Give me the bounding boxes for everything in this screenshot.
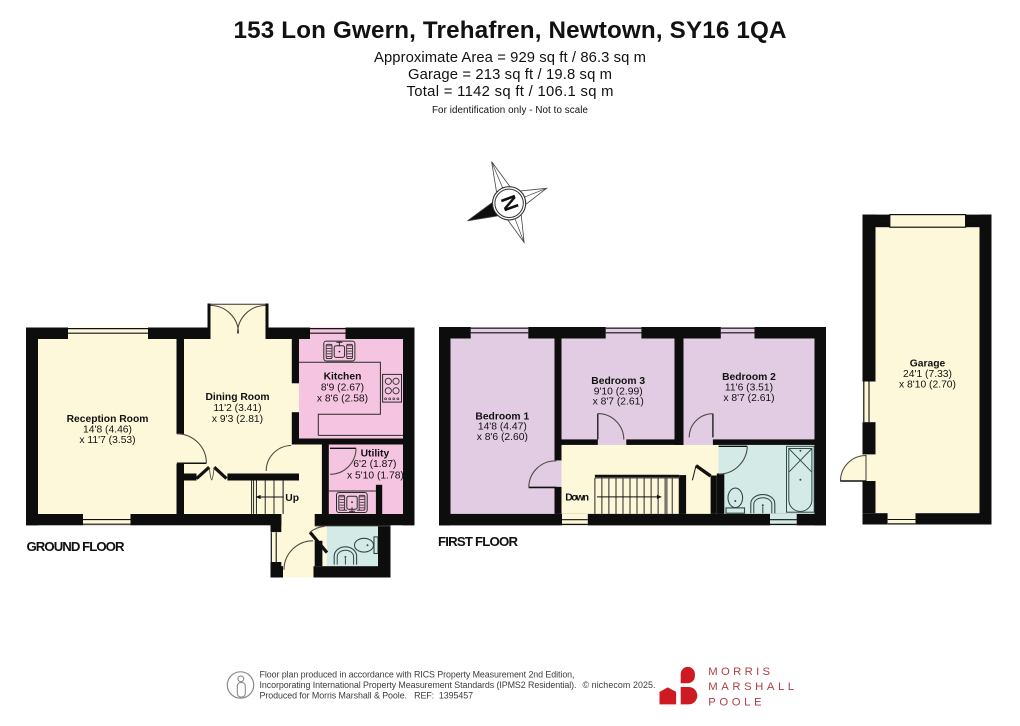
svg-text:x 8'10 (2.70): x 8'10 (2.70) xyxy=(899,379,956,390)
svg-text:GROUND FLOOR: GROUND FLOOR xyxy=(27,539,125,554)
svg-text:24'1 (7.33): 24'1 (7.33) xyxy=(903,369,952,380)
svg-text:Bedroom 1: Bedroom 1 xyxy=(475,411,529,422)
svg-text:x 8'7 (2.61): x 8'7 (2.61) xyxy=(723,393,774,404)
svg-text:Approximate Area = 929 sq ft /: Approximate Area = 929 sq ft / 86.3 sq m xyxy=(374,50,646,66)
svg-text:8'9 (2.67): 8'9 (2.67) xyxy=(321,383,364,394)
svg-text:Total = 1142 sq ft / 106.1 sq: Total = 1142 sq ft / 106.1 sq m xyxy=(407,84,614,100)
svg-text:x 8'7 (2.61): x 8'7 (2.61) xyxy=(593,397,644,408)
svg-text:11'6 (3.51): 11'6 (3.51) xyxy=(725,383,773,394)
svg-text:Floor plan produced in accorda: Floor plan produced in accordance with R… xyxy=(260,670,575,680)
svg-text:© nichecom 2025.: © nichecom 2025. xyxy=(583,680,656,690)
svg-text:x 9'3 (2.81): x 9'3 (2.81) xyxy=(212,414,263,425)
svg-text:14'8 (4.47): 14'8 (4.47) xyxy=(478,422,527,433)
svg-text:Dining Room: Dining Room xyxy=(205,392,269,403)
svg-text:x 8'6 (2.60): x 8'6 (2.60) xyxy=(477,432,528,443)
svg-text:11'2 (3.41): 11'2 (3.41) xyxy=(213,403,261,414)
svg-text:Bedroom 2: Bedroom 2 xyxy=(722,372,776,383)
svg-text:x 8'6 (2.58): x 8'6 (2.58) xyxy=(317,394,368,405)
svg-text:9'10 (2.99): 9'10 (2.99) xyxy=(594,386,643,397)
svg-text:Down: Down xyxy=(565,492,589,503)
svg-text:For identification only - Not: For identification only - Not to scale xyxy=(432,105,589,116)
svg-text:Utility: Utility xyxy=(361,449,390,460)
svg-text:x 11'7 (3.53): x 11'7 (3.53) xyxy=(79,435,135,446)
svg-text:Up: Up xyxy=(285,493,299,504)
svg-text:6'2 (1.87): 6'2 (1.87) xyxy=(353,459,396,470)
svg-text:x 5'10 (1.78): x 5'10 (1.78) xyxy=(347,470,404,481)
svg-text:153 Lon Gwern, Trehafren, Newt: 153 Lon Gwern, Trehafren, Newtown, SY16 … xyxy=(234,17,787,44)
svg-text:Kitchen: Kitchen xyxy=(324,372,362,383)
svg-text:Reception Room: Reception Room xyxy=(67,414,149,425)
svg-text:Incorporating International Pr: Incorporating International Property Mea… xyxy=(260,680,577,690)
svg-text:Garage = 213 sq ft / 19.8 sq m: Garage = 213 sq ft / 19.8 sq m xyxy=(408,67,612,83)
svg-text:Garage: Garage xyxy=(910,359,946,370)
svg-text:14'8 (4.46): 14'8 (4.46) xyxy=(83,424,132,435)
svg-text:MARSHALL: MARSHALL xyxy=(708,681,794,693)
svg-text:Produced for Morris Marshall &: Produced for Morris Marshall & Poole. RE… xyxy=(260,690,474,700)
svg-text:FIRST FLOOR: FIRST FLOOR xyxy=(438,534,518,549)
svg-text:Bedroom 3: Bedroom 3 xyxy=(591,376,645,387)
